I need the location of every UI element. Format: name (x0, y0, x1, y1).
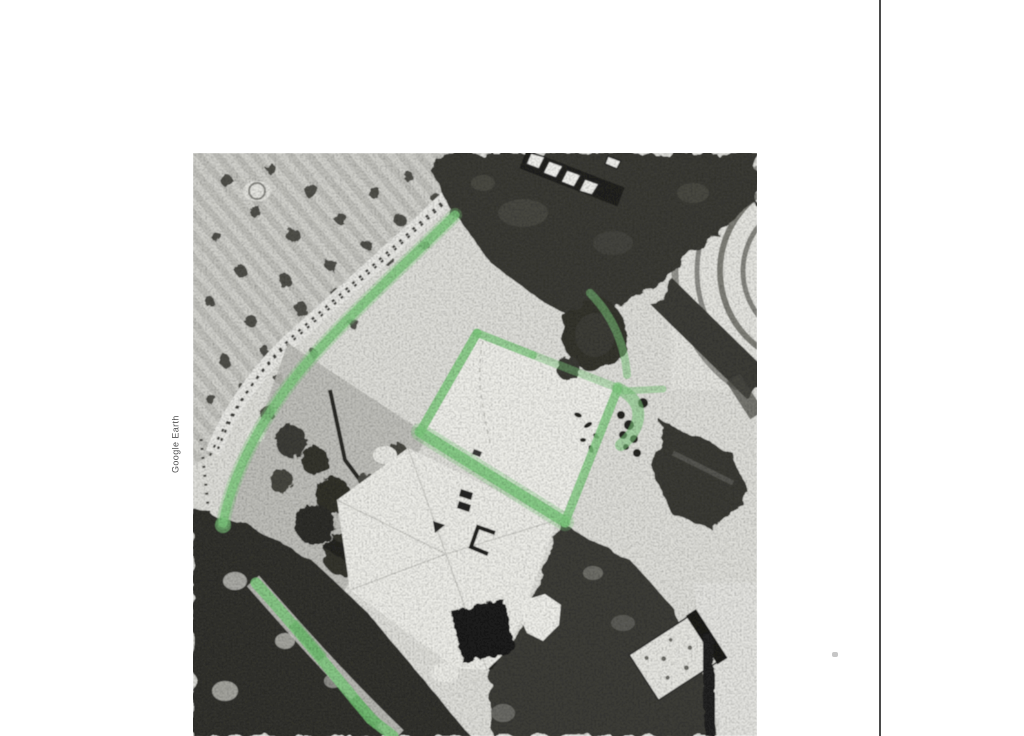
page-edge-scan-line (879, 0, 881, 736)
scan-grain-overlay (193, 153, 757, 736)
aerial-photo-canvas (193, 153, 757, 736)
scanned-page: Google Earth (0, 0, 1024, 736)
google-earth-credit: Google Earth (167, 404, 184, 484)
aerial-photo (193, 153, 757, 736)
scan-speck (832, 652, 838, 657)
